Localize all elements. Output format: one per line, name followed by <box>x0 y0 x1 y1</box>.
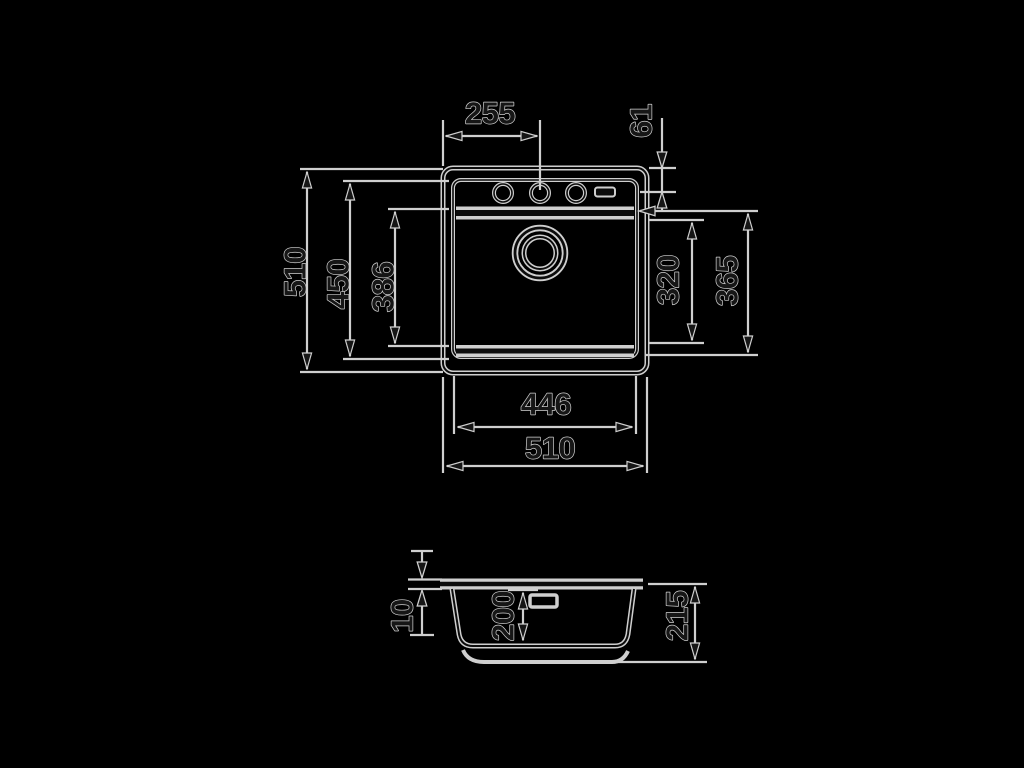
dim-label-510-left: 510 <box>278 247 313 297</box>
technical-drawing-canvas: 255 61 510 450 <box>0 0 1024 768</box>
dim-label-215: 215 <box>660 591 695 641</box>
dim-label-255: 255 <box>465 96 515 131</box>
dim-label-386: 386 <box>366 262 401 312</box>
dim-label-365: 365 <box>710 256 745 306</box>
dim-label-320: 320 <box>651 255 686 305</box>
dim-label-446: 446 <box>521 387 571 422</box>
dim-label-450: 450 <box>321 259 356 309</box>
dim-label-510-bottom: 510 <box>525 431 575 466</box>
dim-label-200: 200 <box>486 591 521 641</box>
tap-slot <box>595 188 615 197</box>
dim-label-61: 61 <box>624 104 659 138</box>
dim-label-10: 10 <box>385 599 420 632</box>
sink-dimension-drawing: 255 61 510 450 <box>0 0 1024 768</box>
